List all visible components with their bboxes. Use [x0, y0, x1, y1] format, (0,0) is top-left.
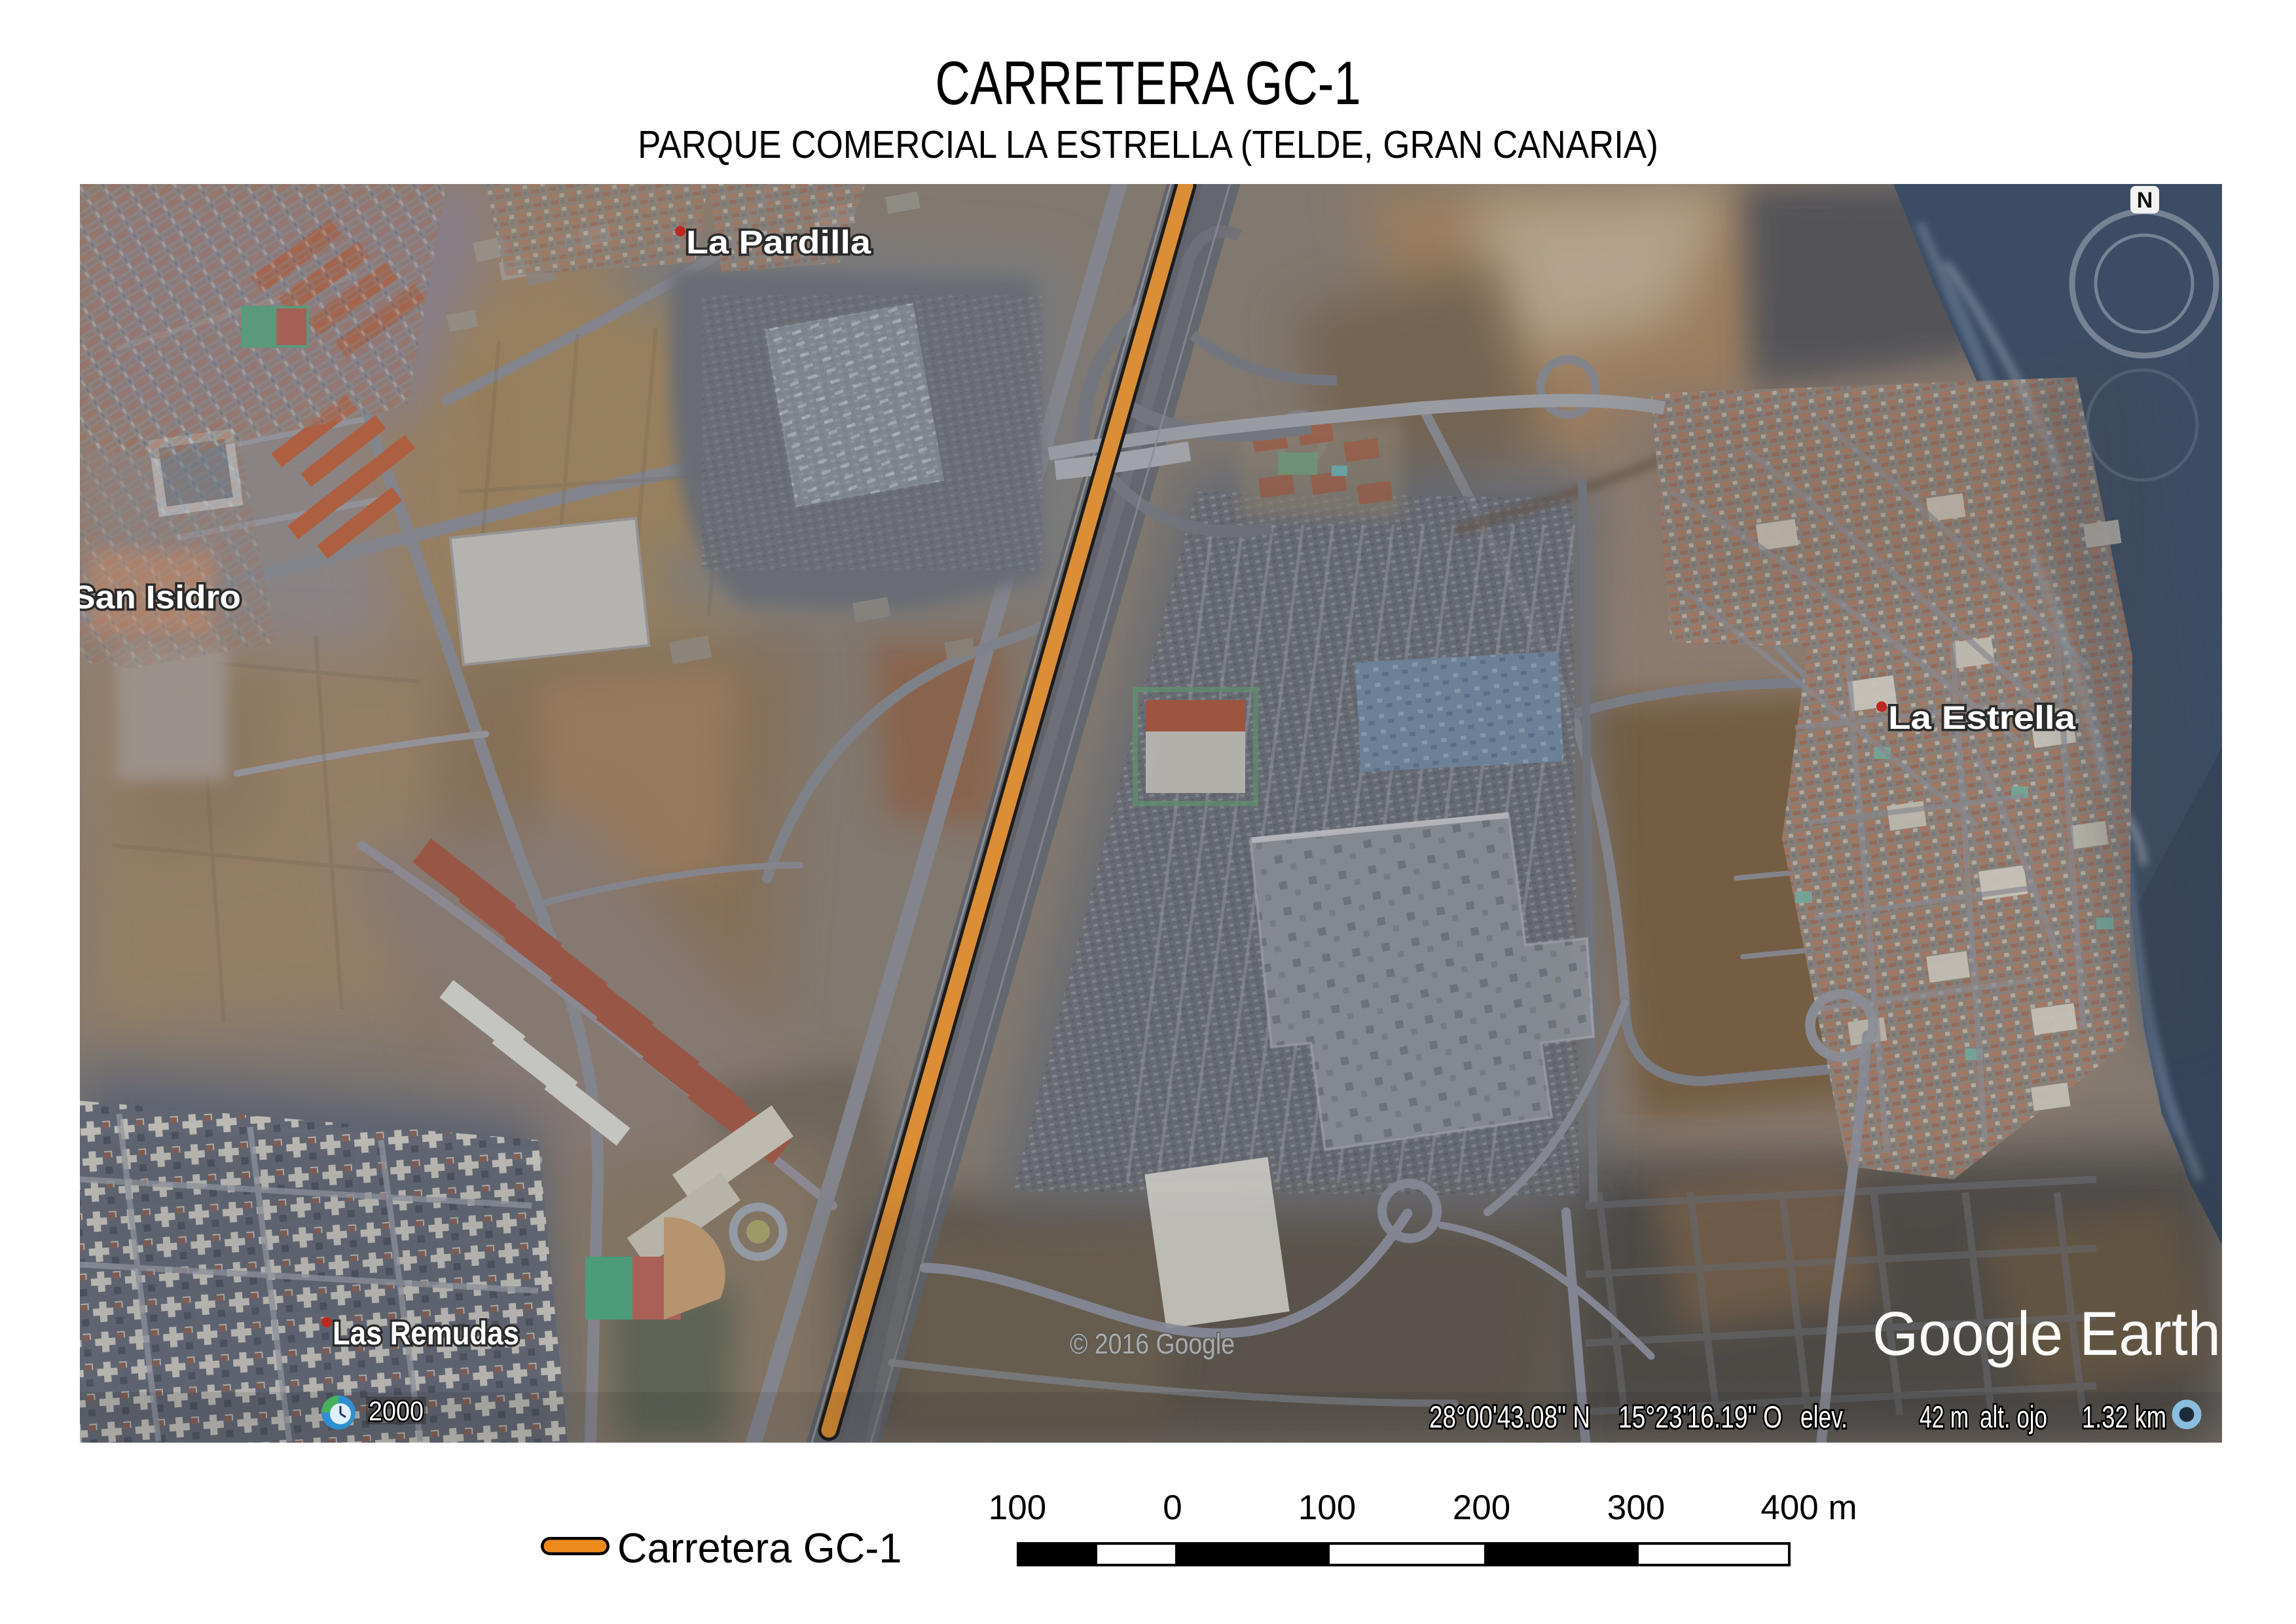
svg-text:Google Earth: Google Earth — [1872, 1299, 2221, 1369]
svg-text:elev.: elev. — [1800, 1399, 1848, 1434]
svg-text:© 2016 Google: © 2016 Google — [1070, 1328, 1235, 1360]
svg-text:alt. ojo: alt. ojo — [1980, 1399, 2047, 1434]
svg-text:15°23'16.19" O: 15°23'16.19" O — [1618, 1399, 1782, 1434]
svg-text:N: N — [2137, 188, 2153, 213]
svg-text:La Estrella: La Estrella — [1888, 699, 2076, 736]
svg-text:28°00'43.08" N: 28°00'43.08" N — [1429, 1399, 1590, 1434]
svg-text:Las Remudas: Las Remudas — [333, 1315, 519, 1352]
svg-text:2000: 2000 — [369, 1395, 424, 1426]
svg-text:1.32 km: 1.32 km — [2082, 1399, 2166, 1434]
svg-text:San Isidro: San Isidro — [80, 579, 241, 616]
svg-text:La Pardilla: La Pardilla — [686, 224, 871, 261]
svg-text:42 m: 42 m — [1920, 1399, 1969, 1434]
